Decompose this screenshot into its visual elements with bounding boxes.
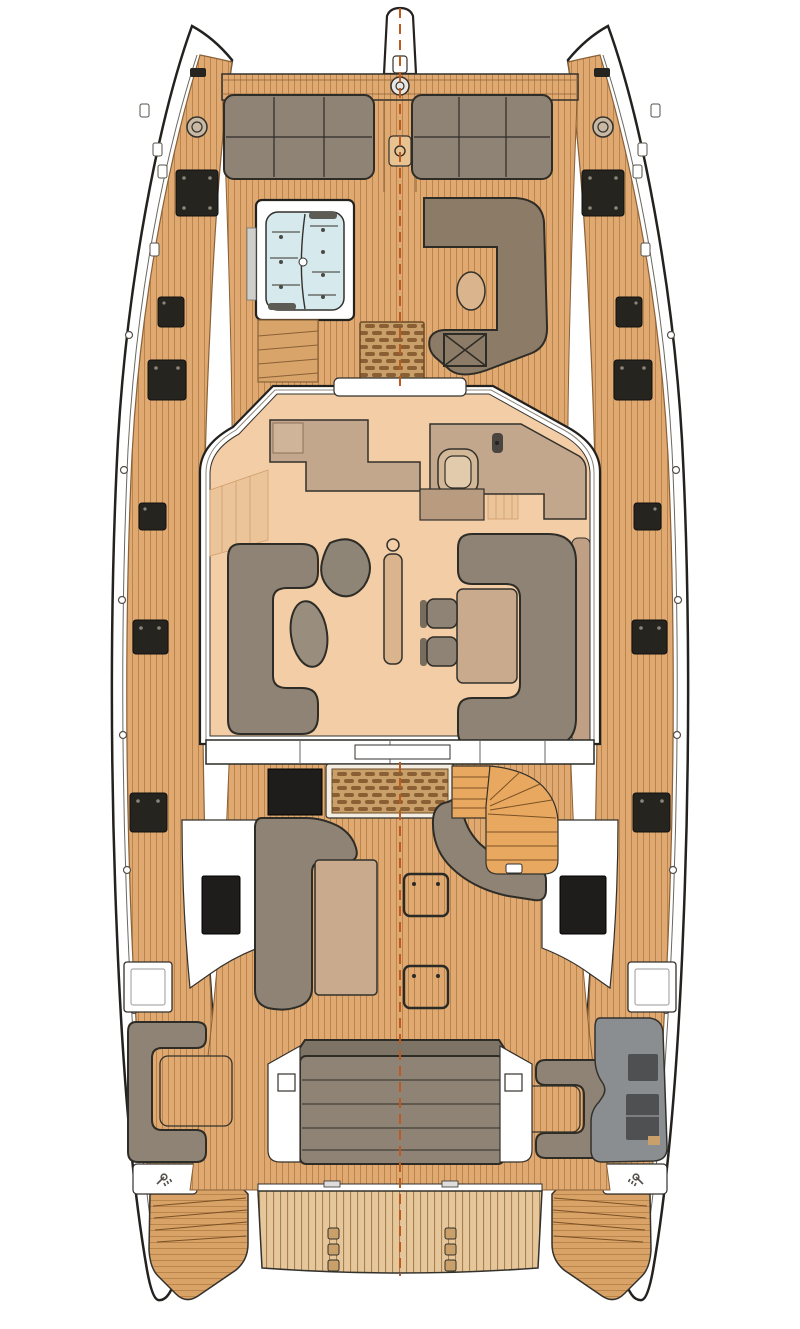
stair-upper-flight bbox=[452, 766, 490, 818]
salon bbox=[200, 378, 600, 764]
jacuzzi bbox=[247, 200, 354, 320]
gunwale-cleat bbox=[120, 732, 127, 739]
bow-vent bbox=[190, 68, 206, 77]
sliding-door bbox=[355, 745, 450, 759]
salon-console bbox=[384, 554, 402, 664]
wet-bar-shelf bbox=[648, 1136, 660, 1145]
companionway-window-starboard bbox=[560, 876, 606, 934]
counter-appliance bbox=[273, 423, 303, 453]
dining-chair bbox=[420, 599, 457, 628]
stanchion-base bbox=[153, 143, 162, 156]
deck-plan-canvas bbox=[0, 0, 800, 1329]
deck-fill-cap bbox=[187, 117, 207, 137]
cockpit-bench-grate bbox=[332, 769, 448, 813]
stair-bottom-step bbox=[506, 864, 522, 873]
forward-lounge-table bbox=[457, 272, 485, 310]
companionway-window-port bbox=[202, 876, 240, 934]
stanchion-base bbox=[150, 243, 159, 256]
deck-hatch bbox=[133, 620, 168, 654]
transom-steps bbox=[149, 1186, 248, 1300]
deck-hatch bbox=[158, 297, 184, 327]
bow-sunpad-starboard bbox=[412, 95, 552, 179]
aft-sunbed-cushion bbox=[300, 1056, 504, 1164]
deck-hatch bbox=[176, 170, 218, 216]
dining-table bbox=[457, 589, 517, 683]
deck-hatch bbox=[148, 360, 186, 400]
sunbed-wedge-starboard bbox=[500, 1046, 532, 1162]
sunbed-wedge-port bbox=[268, 1046, 300, 1162]
side-table-port bbox=[160, 1056, 232, 1126]
coffee-table bbox=[321, 539, 370, 596]
galley-sink-basin bbox=[445, 456, 471, 488]
jacuzzi-headrest bbox=[268, 303, 296, 310]
galley-fridge bbox=[420, 489, 484, 520]
companionway-steps bbox=[258, 320, 318, 382]
gunwale-cleat bbox=[124, 867, 131, 874]
salon-aft-window bbox=[268, 769, 322, 815]
jacuzzi-control bbox=[299, 258, 307, 266]
galley-faucet-knob bbox=[495, 441, 499, 445]
jacuzzi-equipment bbox=[247, 228, 256, 300]
cockpit-table bbox=[315, 860, 377, 995]
gunwale-cleat bbox=[121, 467, 128, 474]
wet-bar-grill bbox=[626, 1094, 659, 1140]
stanchion-base bbox=[158, 165, 167, 178]
catamaran-deck-plan bbox=[0, 0, 800, 1329]
stanchion-base bbox=[140, 104, 149, 117]
jacuzzi-headrest bbox=[309, 212, 337, 219]
stern-cleat bbox=[442, 1181, 458, 1187]
bow-sunpad-port bbox=[224, 95, 374, 179]
stern-cleat bbox=[324, 1181, 340, 1187]
deck-hatch bbox=[139, 503, 166, 530]
dining-chair bbox=[420, 637, 457, 666]
wet-bar-sink bbox=[628, 1054, 658, 1081]
deck-hatch bbox=[130, 793, 167, 832]
gunwale-cleat bbox=[119, 597, 126, 604]
mast-post bbox=[387, 539, 399, 551]
gunwale-cleat bbox=[126, 332, 133, 339]
forward-deck-grate bbox=[360, 322, 424, 384]
